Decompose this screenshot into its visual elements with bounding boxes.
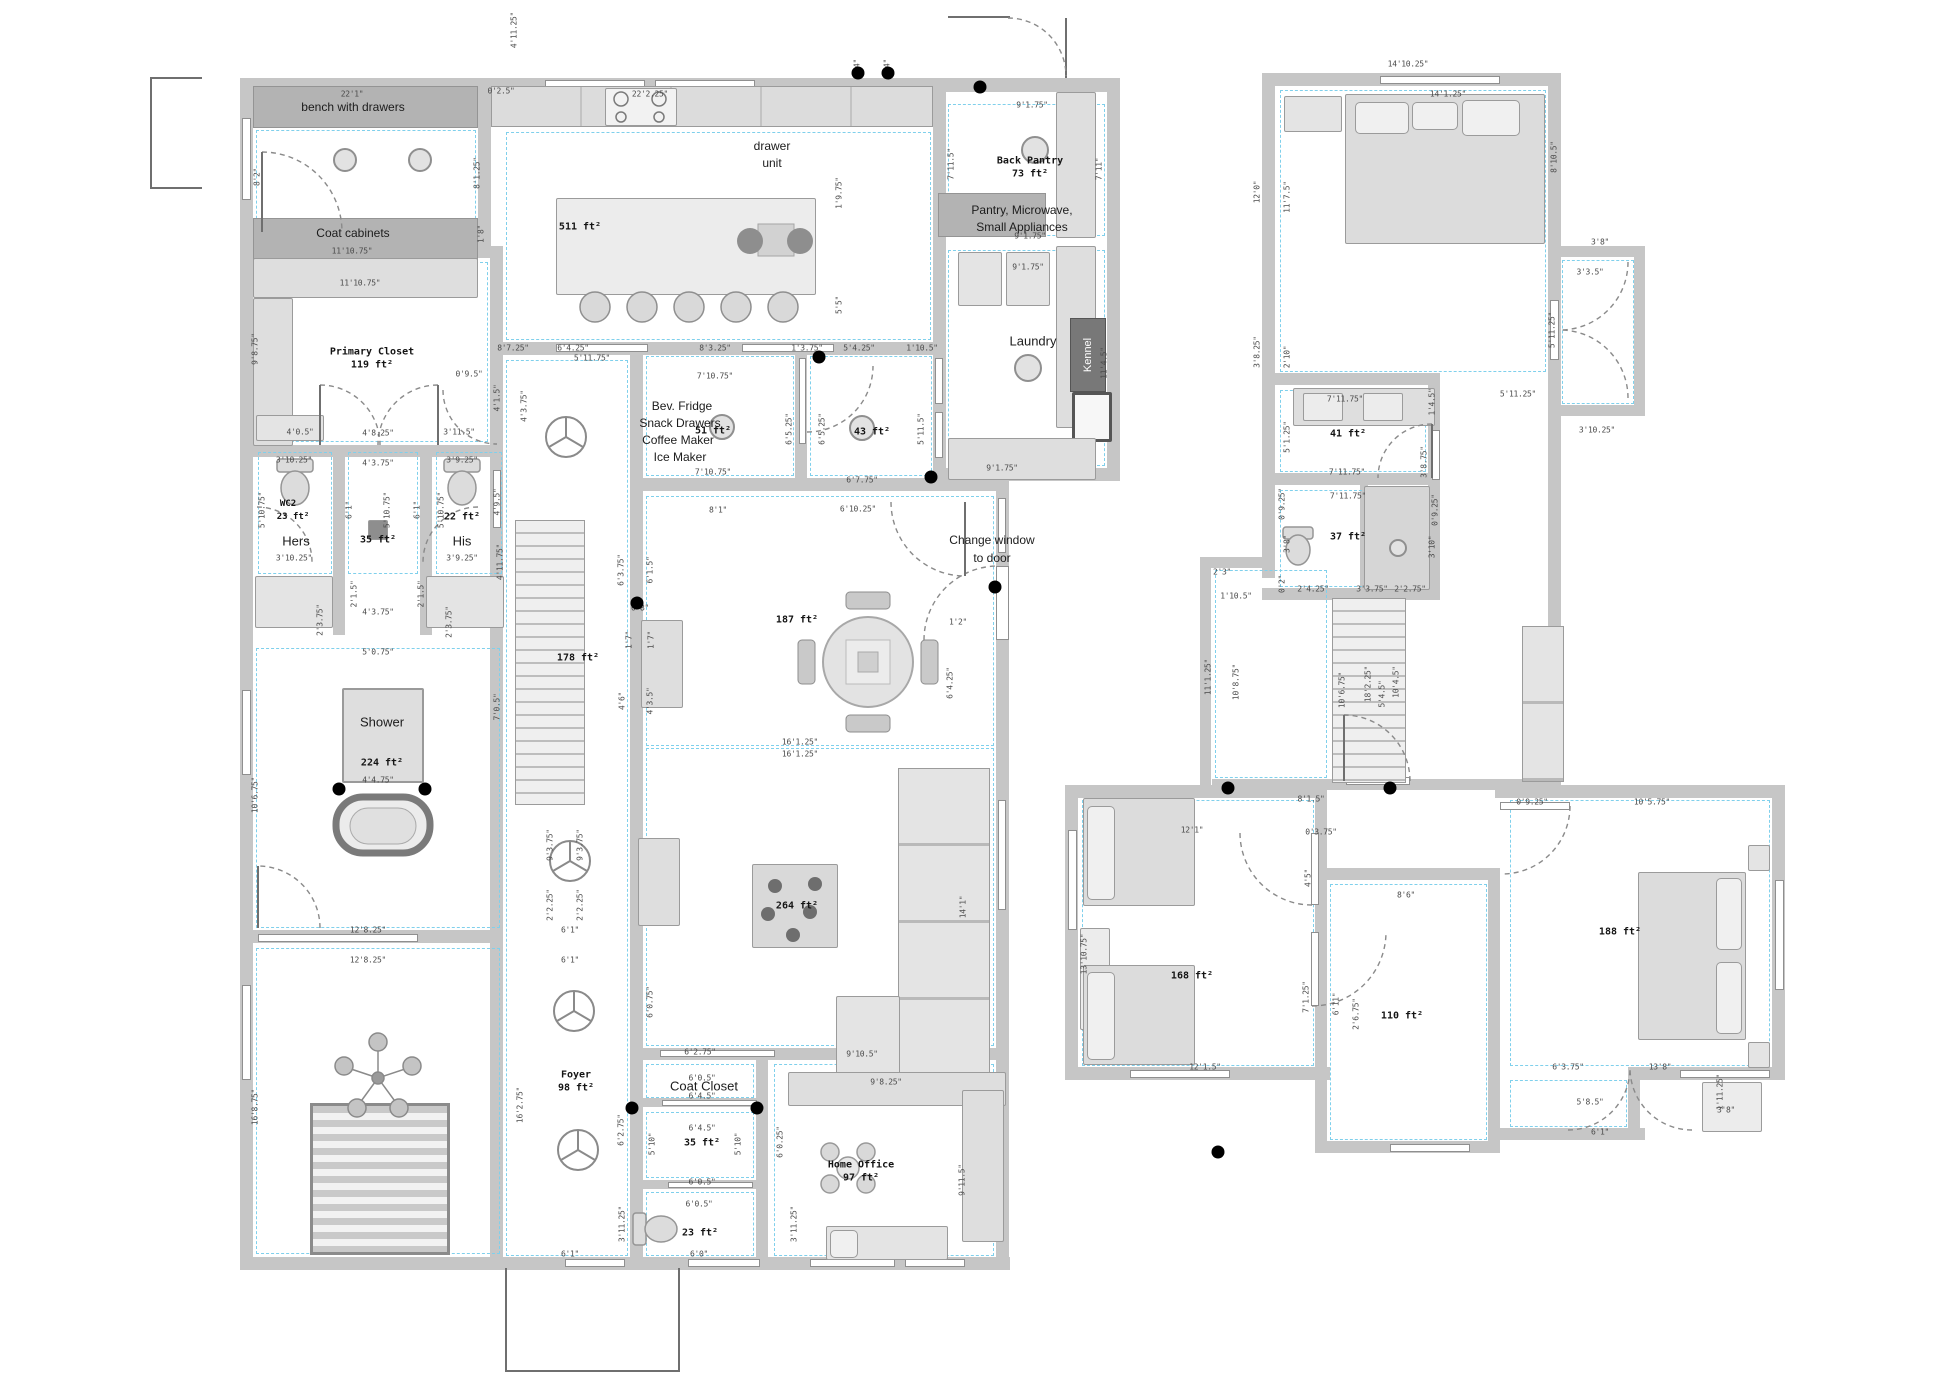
wall <box>1262 73 1275 578</box>
window <box>799 358 806 444</box>
bev-label: Ice Maker <box>654 450 707 464</box>
kitchen-counter <box>491 86 933 127</box>
his-area-label: 22 ft² <box>444 512 480 523</box>
dim-label: 0'9.5" <box>455 370 482 379</box>
dim-label: 7'11.75" <box>1327 395 1363 404</box>
wall <box>1548 246 1645 257</box>
kitchen-island <box>556 198 816 295</box>
dim-label: 8'7.25" <box>497 344 529 353</box>
junction-dot <box>852 67 865 80</box>
dim-label: 3'10.25" <box>276 554 312 563</box>
pillow <box>1716 878 1742 950</box>
dim-label: 12'8.25" <box>350 926 386 935</box>
junction-dot <box>626 1102 639 1115</box>
dim-label: 6'10.25" <box>840 505 876 514</box>
bench-label: bench with drawers <box>301 100 404 114</box>
dim-label: 5'5" <box>835 296 844 314</box>
dim-label: 5'11.25" <box>1548 312 1557 348</box>
dim-label: 14'1.25" <box>1430 90 1466 99</box>
pillow <box>1355 102 1409 134</box>
exterior-door-line <box>1065 18 1067 78</box>
dim-label: 5'11.5" <box>917 413 926 445</box>
dim-label: 7'10.75" <box>695 468 731 477</box>
dim-label: 6'3.75" <box>617 554 626 586</box>
dim-label: 3'8.75" <box>1420 446 1429 478</box>
window <box>1775 880 1784 990</box>
dim-label: 9'1.75" <box>1014 232 1046 241</box>
dim-label: 5'10.75" <box>437 492 446 528</box>
window <box>1380 76 1500 84</box>
dim-label: 6'1" <box>561 1250 579 1259</box>
dim-label: 3'11.25" <box>618 1206 627 1242</box>
dim-label: 4'6" <box>618 692 627 710</box>
entry-walk-line <box>505 1268 507 1372</box>
dim-label: 6'5.25" <box>785 413 794 445</box>
dim-label: 8'3.25" <box>699 344 731 353</box>
dim-label: 5'0.75" <box>362 648 394 657</box>
bed168-area-label: 168 ft² <box>1171 971 1213 982</box>
dim-label: 2'4.25" <box>1297 585 1329 594</box>
dim-label: 11'10.75" <box>340 279 381 288</box>
dim-label: 3'10.25" <box>276 456 312 465</box>
wall <box>333 445 345 635</box>
dim-label: 6'2.75" <box>617 1114 626 1146</box>
dim-label: 9'8.25" <box>870 1078 902 1087</box>
dim-label: 12'1.5" <box>1189 1063 1221 1072</box>
wall <box>1634 246 1645 416</box>
back-pantry-area-label: 73 ft² <box>1012 169 1048 180</box>
shower-stall <box>1364 486 1430 590</box>
dim-label: 5'1.25" <box>1283 421 1292 453</box>
dim-label: 3'9.25" <box>446 554 478 563</box>
window <box>905 1259 965 1267</box>
dryer <box>1006 252 1050 306</box>
dim-label: 2'2.25" <box>576 889 585 921</box>
dim-label: 10'6.75" <box>1338 672 1347 708</box>
coat-cabinets-label: Coat cabinets <box>316 226 389 240</box>
junction-dot <box>419 783 432 796</box>
dim-label: 4'1.5" <box>493 384 502 411</box>
dim-label: 3'11.25" <box>790 1206 799 1242</box>
dim-label: 11'4.5" <box>1100 347 1109 379</box>
dim-label: 6'1" <box>345 501 354 519</box>
dim-label: 7'11" <box>1095 158 1104 181</box>
wall <box>1628 1067 1640 1140</box>
shower-area-label: 224 ft² <box>361 758 403 769</box>
dim-label: 8'10.5" <box>1550 141 1559 173</box>
dim-label: 4'11.75" <box>496 544 505 580</box>
sofa-chaise <box>836 996 900 1076</box>
dim-label: 6'0.5" <box>688 1074 715 1083</box>
window <box>1390 1144 1470 1152</box>
dim-label: 1'4.5" <box>1428 388 1437 415</box>
entry-walk-line <box>505 1370 680 1372</box>
dim-label: 7'11.5" <box>947 148 956 180</box>
dim-label: 6'1" <box>1591 1128 1609 1137</box>
dim-label: 18'2.25" <box>1364 666 1373 702</box>
dim-label: 2'10" <box>1283 346 1292 369</box>
pillow <box>830 1230 858 1258</box>
dim-label: 6'4.5" <box>688 1092 715 1101</box>
dim-label: 1'9.75" <box>835 177 844 209</box>
dim-label: 1'10.5" <box>1220 592 1252 601</box>
dim-label: 5'11.25" <box>1500 390 1536 399</box>
pillow <box>1087 806 1115 900</box>
wc23-area-label: 23 ft² <box>682 1228 718 1239</box>
window <box>242 985 251 1080</box>
sink <box>1363 393 1403 421</box>
wall <box>1262 373 1440 385</box>
dim-label: 3'8.25" <box>1253 336 1262 368</box>
dim-label: 6'2.75" <box>684 1048 716 1057</box>
wall <box>1548 405 1645 416</box>
office-area-label: 97 ft² <box>843 1173 879 1184</box>
bed188-area-label: 188 ft² <box>1599 927 1641 938</box>
dim-label: 3'11.5" <box>443 428 475 437</box>
dim-label: 8'1" <box>709 506 727 515</box>
dim-label: 3'8" <box>1717 1106 1735 1115</box>
dim-label: 11'7.5" <box>1283 181 1292 213</box>
mid-wc-area-label: 35 ft² <box>360 535 396 546</box>
wall <box>1488 868 1500 1153</box>
dim-label: 2'3" <box>1213 568 1231 577</box>
primary-closet-area-label: 119 ft² <box>351 360 393 371</box>
dim-label: 8'1.25" <box>473 157 482 189</box>
dim-label: 9'11.5" <box>958 1164 967 1196</box>
room110-area-label: 110 ft² <box>1381 1011 1423 1022</box>
dim-label: 4'0.5" <box>286 428 313 437</box>
dining-table-icon <box>798 592 938 732</box>
dim-label: 4'5" <box>1304 869 1313 887</box>
back-pantry-label: Back Pantry <box>997 156 1063 167</box>
drawer-unit-label: unit <box>762 156 781 170</box>
dim-label: 7'0.5" <box>493 693 502 720</box>
dim-label: 6'1" <box>413 501 422 519</box>
site-line <box>150 187 202 189</box>
dim-label: 6'7.75" <box>846 476 878 485</box>
wall <box>1315 868 1500 880</box>
dim-label: 3'9.25" <box>446 456 478 465</box>
site-line <box>150 77 152 189</box>
site-line <box>150 77 202 79</box>
junction-dot <box>631 597 644 610</box>
dim-label: 6'0.75" <box>646 986 655 1018</box>
media-cabinet <box>638 838 680 926</box>
dim-label: 4'4.75" <box>362 776 394 785</box>
dim-label: 10'5.75" <box>1634 798 1670 807</box>
dim-label: 10'4.5" <box>1392 666 1401 698</box>
dim-label: 0'9.25" <box>1431 494 1440 526</box>
dim-label: 2'3.75" <box>445 606 454 638</box>
dim-label: 4'9.5" <box>493 488 502 515</box>
bath41-area-label: 41 ft² <box>1330 429 1366 440</box>
dim-label: 7'11.75" <box>1329 468 1365 477</box>
pillow <box>1087 972 1115 1060</box>
dim-label: 22'1" <box>341 90 364 99</box>
nightstand <box>1748 1042 1770 1068</box>
dim-label: 16'1.25" <box>782 750 818 759</box>
dim-label: 11'1.25" <box>1204 659 1213 695</box>
door-opening <box>996 566 1009 640</box>
entry-walk-line <box>678 1268 680 1372</box>
dim-label: 2'2.75" <box>1394 585 1426 594</box>
room-closet-188 <box>1510 1080 1627 1127</box>
dim-label: 16'1.25" <box>782 738 818 747</box>
dining-area-label: 187 ft² <box>776 615 818 626</box>
dim-label: 8'2" <box>253 168 262 186</box>
dim-label: 12'1" <box>1181 826 1204 835</box>
stair-area-label: 178 ft² <box>557 653 599 664</box>
dim-label: 5'10" <box>648 1133 657 1156</box>
dim-label: 14'1" <box>959 896 968 919</box>
dim-label: 12'0" <box>1253 181 1262 204</box>
dim-label: 8'6" <box>1397 891 1415 900</box>
dim-label: 5'10" <box>734 1133 743 1156</box>
door-opening <box>660 1050 775 1057</box>
dim-label: 4'8.25" <box>362 429 394 438</box>
dim-label: 2'1.5" <box>350 580 359 607</box>
dim-label: 6'1" <box>561 956 579 965</box>
dim-label: 2'6.75" <box>1352 998 1361 1030</box>
room-43 <box>810 356 932 476</box>
dim-label: 6'4.25" <box>946 667 955 699</box>
dim-label: 6'0.25" <box>776 1126 785 1158</box>
wall <box>1065 785 1327 798</box>
foyer-area-label: 98 ft² <box>558 1083 594 1094</box>
stool-icons <box>580 292 798 322</box>
change-window-note: to door <box>973 551 1010 565</box>
dim-label: 0'2" <box>1278 575 1287 593</box>
living-area-label: 264 ft² <box>776 901 818 912</box>
dim-label: 8'1.5" <box>1297 795 1324 804</box>
dim-label: 7'1.25" <box>1302 981 1311 1013</box>
dim-label: 4'3.75" <box>362 459 394 468</box>
dim-label: 2'2.25" <box>546 889 555 921</box>
door-opening <box>662 1100 757 1106</box>
dim-label: 3'10.25" <box>1579 426 1615 435</box>
window <box>935 358 943 404</box>
dim-label: 16'2.75" <box>516 1087 525 1123</box>
dim-label: 5'10.75" <box>258 492 267 528</box>
dim-label: 6'0" <box>690 1250 708 1259</box>
nightstand <box>1748 845 1770 871</box>
closet35-area-label: 35 ft² <box>684 1138 720 1149</box>
dim-label: 3'10" <box>1428 536 1437 559</box>
junction-dot <box>974 81 987 94</box>
wall <box>1200 557 1275 568</box>
room-dining <box>646 496 994 746</box>
dim-label: 9'1.75" <box>986 464 1018 473</box>
dim-label: 0'9.25" <box>1516 798 1548 807</box>
dim-label: 2'3.75" <box>316 604 325 636</box>
his-label: His <box>453 534 472 549</box>
wc2-area-label: 23 ft² <box>277 512 310 522</box>
primary-closet-label: Primary Closet <box>330 347 414 358</box>
kitchen-area-label: 511 ft² <box>559 222 601 233</box>
junction-dot <box>1222 782 1235 795</box>
laundry-label: Laundry <box>1010 334 1057 349</box>
window <box>242 118 251 200</box>
dim-label: 4'3.75" <box>362 608 394 617</box>
dim-label: 1'2" <box>949 618 967 627</box>
pantry-note-label: Pantry, Microwave, <box>971 203 1072 217</box>
dim-label: 6'11" <box>1332 993 1341 1016</box>
dim-label: 4'3.5" <box>646 687 655 714</box>
dim-label: 7'10.75" <box>697 372 733 381</box>
hers-label: Hers <box>282 534 309 549</box>
dim-label: 5'11.75" <box>574 354 610 363</box>
bev-label: Bev. Fridge <box>652 399 712 413</box>
vanity-his <box>426 576 504 628</box>
junction-dot <box>751 1102 764 1115</box>
dim-label: 12'8.25" <box>350 956 386 965</box>
shower-label: Shower <box>360 715 404 730</box>
dim-label: 5'10.75" <box>383 492 392 528</box>
exterior-door-line <box>948 16 1010 18</box>
dim-label: 9'3.75" <box>576 829 585 861</box>
junction-dot <box>333 783 346 796</box>
dim-label: 9'10.5" <box>846 1050 878 1059</box>
change-window-note: Change window <box>949 533 1034 547</box>
dim-label: 6'4.5" <box>688 1124 715 1133</box>
window <box>1680 1070 1770 1078</box>
floor-plan-canvas: bench with drawers Coat cabinets drawer … <box>0 0 1946 1374</box>
wc37-area-label: 37 ft² <box>1330 532 1366 543</box>
sectional-sofa <box>898 768 990 1076</box>
dim-label: 3'8" <box>1283 535 1292 553</box>
dim-label: 10'8.75" <box>1232 664 1241 700</box>
laundry-sink <box>1072 392 1112 442</box>
wall <box>1495 1128 1645 1140</box>
dim-label: 5'8.5" <box>1576 1098 1603 1107</box>
wall <box>1495 785 1785 798</box>
dim-label: 9'1.75" <box>1012 263 1044 272</box>
dim-label: 3'8" <box>1591 238 1609 247</box>
deck-slats <box>310 1103 450 1255</box>
dim-label: 1'7" <box>625 631 634 649</box>
shower-enclosure <box>342 688 424 783</box>
door-opening <box>565 1259 625 1267</box>
office-label: Home Office <box>828 1160 894 1171</box>
dim-label: 6'1.5" <box>646 556 655 583</box>
junction-dot <box>989 581 1002 594</box>
window <box>1432 430 1440 480</box>
dim-label: 4'11.25" <box>510 12 519 48</box>
dim-label: 6'1" <box>561 926 579 935</box>
dim-label: 9'8.75" <box>251 333 260 365</box>
dim-label: 10'6.75" <box>251 777 260 813</box>
dim-label: 14'10.25" <box>1388 60 1429 69</box>
dim-label: 9'1.75" <box>1016 101 1048 110</box>
junction-dot <box>1212 1146 1225 1159</box>
dim-label: 0'9.25" <box>1278 488 1287 520</box>
dim-label: 6'0.5" <box>685 1200 712 1209</box>
dim-label: 4'3.75" <box>520 390 529 422</box>
window <box>258 934 418 942</box>
nightstand <box>1284 96 1342 132</box>
dim-label: 6'3.75" <box>1552 1063 1584 1072</box>
dim-label: 1'10.5" <box>906 344 938 353</box>
dim-label: 3'3.5" <box>1576 268 1603 277</box>
dim-label: 0'2.5" <box>487 87 514 96</box>
drawer-unit-label: drawer <box>754 139 791 153</box>
dim-label: 2'1.5" <box>417 580 426 607</box>
dim-label: 1'8" <box>477 225 486 243</box>
dim-label: 7'11.75" <box>1330 492 1366 501</box>
junction-dot <box>813 351 826 364</box>
junction-dot <box>1384 782 1397 795</box>
dim-label: 1'7" <box>647 631 656 649</box>
dim-label: 9'3.75" <box>546 829 555 861</box>
bathtub-icon <box>336 797 430 853</box>
dim-label: 6'4.25" <box>557 344 589 353</box>
foyer-label: Foyer <box>561 1070 591 1081</box>
junction-dot <box>925 471 938 484</box>
dim-label: 5'4.25" <box>843 344 875 353</box>
wall <box>756 1048 768 1268</box>
sofa <box>1522 626 1564 782</box>
dim-label: 11'10.75" <box>332 247 373 256</box>
window <box>998 800 1006 910</box>
pillow <box>1716 962 1742 1034</box>
dim-label: 13'8" <box>1649 1063 1672 1072</box>
dim-label: 16'8.75" <box>251 1089 260 1125</box>
window <box>1068 830 1077 930</box>
window <box>242 690 251 775</box>
dim-label: 13'10.75" <box>1080 934 1089 975</box>
kennel-label: Kennel <box>1082 338 1094 372</box>
office-shelf <box>962 1090 1004 1242</box>
washer <box>958 252 1002 306</box>
dim-label: 6'0.5" <box>688 1178 715 1187</box>
door-opening <box>688 1259 760 1267</box>
window <box>810 1259 895 1267</box>
door-leaf <box>1311 932 1319 1006</box>
wc2-label: WC2 <box>280 499 296 509</box>
bev-area-label: 51 ft² <box>695 426 731 437</box>
laundry-counter <box>948 438 1096 480</box>
dim-label: 22'2.25" <box>632 90 668 99</box>
dim-label: 0'3.75" <box>1305 828 1337 837</box>
dim-label: 6'5.25" <box>818 413 827 445</box>
dim-label: 3'3.75" <box>1356 585 1388 594</box>
junction-dot <box>882 67 895 80</box>
window <box>935 412 943 458</box>
pillow <box>1412 102 1458 130</box>
room-closet-upper <box>1562 260 1634 404</box>
pillow <box>1462 100 1520 136</box>
dim-label: 5'4.5" <box>1378 680 1387 707</box>
room43-area-label: 43 ft² <box>854 427 890 438</box>
